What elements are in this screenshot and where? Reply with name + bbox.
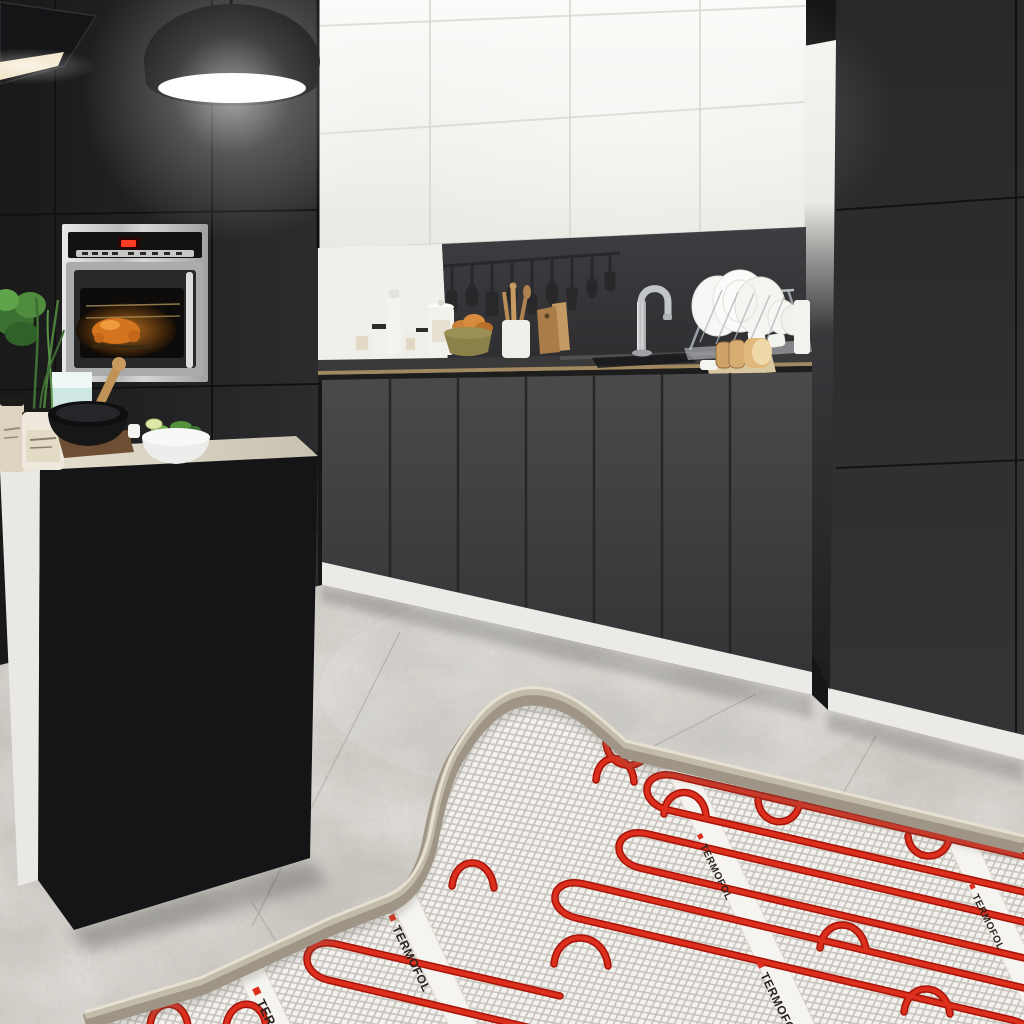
oven-buttons xyxy=(82,252,182,255)
oven-display-glow xyxy=(121,240,136,247)
chicken-leg-1 xyxy=(128,330,140,342)
chicken-highlight xyxy=(100,320,120,330)
oven xyxy=(62,224,208,382)
cutting-boards xyxy=(537,302,570,354)
kitchen-render: TERMOFOL TERMOFOL TERMOFOL TERMOFOL TERM… xyxy=(0,0,1024,1024)
chicken-leg-2 xyxy=(94,333,104,343)
oven-handle xyxy=(186,272,193,368)
scene-root: TERMOFOL TERMOFOL TERMOFOL TERMOFOL TERM… xyxy=(0,0,1024,1024)
teal-box-band xyxy=(52,372,92,388)
white-canister-right xyxy=(794,300,810,354)
oven-tray xyxy=(92,346,152,347)
island-front-black xyxy=(38,452,318,930)
small-cup xyxy=(128,424,140,438)
